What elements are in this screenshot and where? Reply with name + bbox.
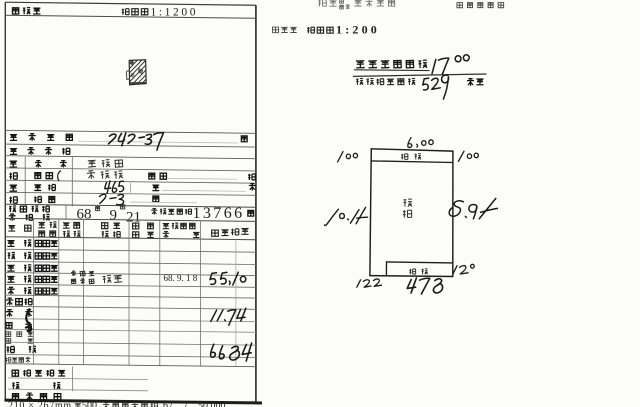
svg-text:67. 7. 50,000: 67. 7. 50,000 (163, 400, 226, 407)
svg-text:68. 9. 1 8: 68. 9. 1 8 (164, 273, 198, 283)
svg-text:68: 68 (77, 207, 92, 223)
svg-text:500: 500 (82, 400, 97, 407)
svg-text:9: 9 (110, 208, 118, 224)
svg-text:210 × 267mm: 210 × 267mm (8, 400, 72, 407)
svg-text:13766: 13766 (193, 205, 245, 222)
svg-text:1:1200: 1:1200 (151, 7, 199, 19)
svg-text:1:200: 1:200 (336, 22, 380, 36)
